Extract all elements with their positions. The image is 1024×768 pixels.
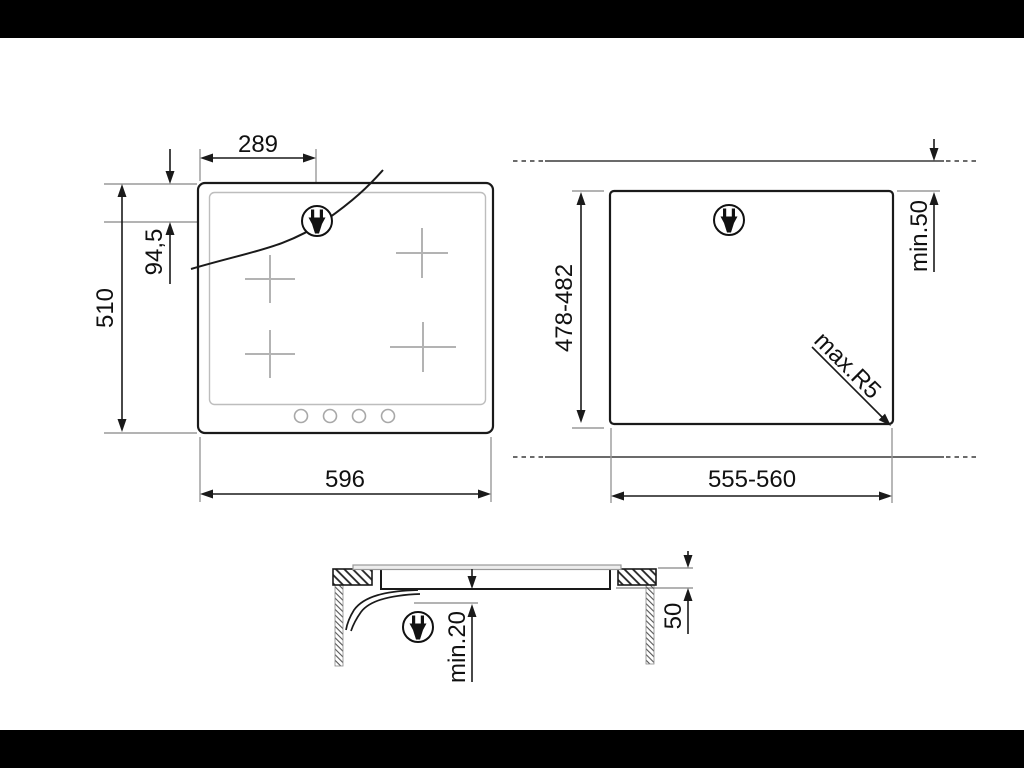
dim-label-cutout-depth: 478-482	[553, 264, 577, 352]
dim-label-hob-height: 510	[94, 288, 118, 328]
hob-body-section	[381, 569, 610, 589]
dim-label-plug-offset-x: 289	[238, 133, 278, 157]
power-plug-icon	[302, 206, 332, 236]
dim-label-cutout-width: 555-560	[708, 468, 796, 492]
dim-label-edge-clearance: min.50	[908, 200, 932, 272]
cutout-outline	[610, 191, 893, 424]
hob-top-view	[104, 149, 493, 502]
cutout-top-view	[513, 139, 978, 503]
power-plug-icon	[403, 612, 433, 642]
dim-label-clearance-below: min.20	[446, 611, 470, 683]
hob-outline	[198, 183, 493, 433]
installation-drawing-page: 289 94,5 510 596 478-482 min.50 max.R5 5…	[0, 0, 1024, 768]
dim-label-recess-depth: 50	[662, 603, 686, 630]
cabinet-wall-right	[646, 585, 654, 664]
dim-label-hob-width: 596	[325, 468, 365, 492]
installation-section-view	[333, 551, 693, 682]
cabinet-wall-left	[335, 585, 343, 666]
power-plug-icon	[714, 205, 744, 235]
dim-label-plug-offset-y: 94,5	[143, 229, 167, 276]
worktop-section-right	[618, 569, 656, 585]
hob-glass-section	[353, 565, 621, 570]
worktop-section-left	[333, 569, 372, 585]
